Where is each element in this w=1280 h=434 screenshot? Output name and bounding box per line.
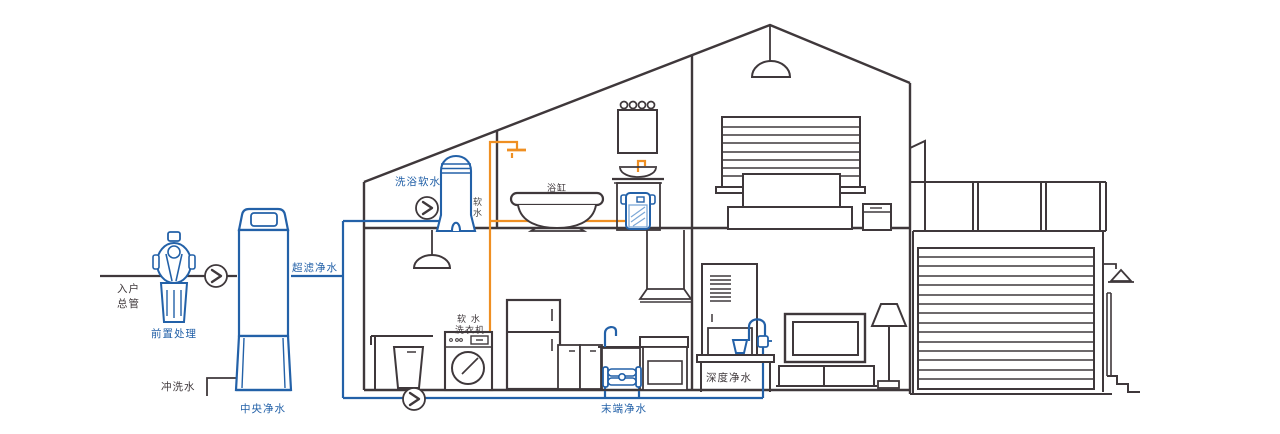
bed bbox=[728, 174, 852, 229]
bathtub bbox=[511, 193, 603, 231]
whole-house-water-system-diagram: 入户 总管 前置处理 冲洗水 中央净水 超滤净水 洗浴软水 软 水 浴缸 软 水… bbox=[0, 0, 1280, 434]
range-hood bbox=[640, 230, 691, 302]
bathroom bbox=[511, 102, 664, 232]
kitchen-cabinets bbox=[558, 345, 602, 389]
under-sink-filter-device bbox=[603, 367, 641, 387]
laundry-basket bbox=[394, 347, 423, 388]
garage-roller-door bbox=[918, 248, 1094, 389]
vanity-mirror bbox=[618, 110, 657, 153]
label-central-purifier: 中央净水 bbox=[240, 402, 286, 415]
kitchen bbox=[598, 230, 691, 390]
tv-stand bbox=[776, 366, 877, 386]
label-bathtub: 浴缸 bbox=[547, 182, 567, 194]
dispenser-cup-icon bbox=[733, 340, 747, 353]
ceiling-lamp-icon bbox=[414, 230, 450, 268]
label-soft-water-char1: 软 bbox=[473, 196, 483, 208]
label-bath-softener: 洗浴软水 bbox=[395, 175, 441, 188]
outdoor-tap-icon bbox=[1103, 264, 1134, 282]
nightstand bbox=[863, 204, 891, 230]
flush-drain-pipe bbox=[207, 378, 236, 396]
label-ultrafiltration: 超滤净水 bbox=[292, 261, 338, 274]
flow-direction-icon-2 bbox=[416, 197, 438, 219]
living-room bbox=[776, 304, 906, 388]
label-entry-main-line1: 入户 bbox=[117, 282, 140, 295]
dispenser-valve bbox=[758, 336, 768, 347]
washing-machine bbox=[445, 332, 492, 390]
stove-cabinet bbox=[640, 337, 688, 390]
floor-lamp bbox=[872, 304, 906, 388]
under-sink-heater-device bbox=[621, 193, 655, 229]
garage-structure bbox=[910, 141, 1112, 394]
pendant-lamp-icon bbox=[752, 25, 790, 77]
mirror-lights-icon bbox=[621, 102, 655, 109]
label-entry-main-line2: 总管 bbox=[117, 297, 140, 310]
flow-direction-icon-1 bbox=[205, 265, 227, 287]
outdoor-steps bbox=[1107, 376, 1140, 392]
bath-softener-device bbox=[437, 156, 475, 231]
water-dispenser-device bbox=[702, 264, 772, 355]
label-terminal-purifier: 末端净水 bbox=[601, 402, 647, 415]
label-pre-treatment: 前置处理 bbox=[151, 327, 197, 340]
label-washer-line2: 洗衣机 bbox=[455, 324, 485, 336]
fence-posts bbox=[925, 182, 1106, 231]
label-washer-line1: 软 水 bbox=[457, 313, 481, 325]
label-deep-purifier: 深度净水 bbox=[706, 371, 752, 384]
bedroom bbox=[716, 25, 891, 230]
refrigerator bbox=[507, 300, 560, 389]
central-purifier-device bbox=[236, 209, 291, 390]
label-soft-water-char2: 水 bbox=[473, 207, 483, 219]
flow-direction-icon-3 bbox=[403, 388, 425, 410]
downspout bbox=[1107, 293, 1111, 376]
kitchen-sink-faucet-icon bbox=[605, 327, 616, 347]
laundry-room bbox=[371, 230, 602, 390]
label-flush-water: 冲洗水 bbox=[161, 380, 196, 393]
